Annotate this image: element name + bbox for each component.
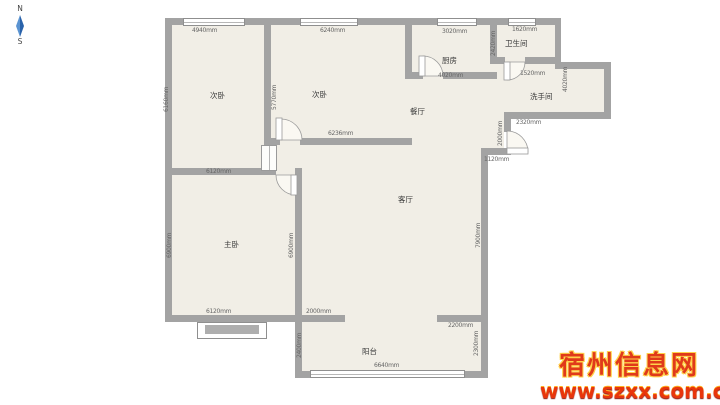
watermark-site-url: www.szxx.com.cn bbox=[540, 381, 718, 401]
dim-label-kitchen-window: 3020mm bbox=[442, 29, 467, 35]
door-leaf bbox=[507, 148, 528, 154]
compass-needle-right bbox=[20, 15, 24, 37]
room-label-dining: 餐厅 bbox=[410, 108, 425, 116]
dim-label-master-top: 6120mm bbox=[206, 169, 231, 175]
dim-label-master-right: 6900mm bbox=[289, 233, 295, 258]
compass-icon: N S bbox=[7, 1, 33, 45]
dim-label-bath-height: 2420mm bbox=[491, 31, 497, 56]
door-leaf bbox=[291, 175, 297, 195]
dim-label-bed2-height: 5770mm bbox=[272, 85, 278, 110]
dim-label-living-bl: 2000mm bbox=[306, 309, 331, 315]
room-label-bathroom: 卫生间 bbox=[505, 40, 528, 48]
floor-plan: N S 次卧 次卧 厨房 卫生间 洗手间 餐厅 客厅 主卧 阳台 4940mm … bbox=[0, 0, 720, 405]
dim-label-balcony-window: 6640mm bbox=[374, 363, 399, 369]
watermark-site-name: 宿州信息网 bbox=[540, 353, 718, 379]
door-arc-bedroom-mid bbox=[281, 119, 302, 140]
dim-label-entry-step: 1120mm bbox=[484, 157, 509, 163]
room-label-kitchen: 厨房 bbox=[442, 57, 457, 65]
compass-south-label: S bbox=[18, 37, 23, 45]
dim-label-right-side: 4020mm bbox=[563, 67, 569, 92]
dim-label-master-bottom: 6120mm bbox=[206, 309, 231, 315]
door-leaf bbox=[419, 56, 425, 76]
compass-needle-left bbox=[16, 15, 20, 37]
room-label-master: 主卧 bbox=[224, 241, 239, 249]
room-label-living: 客厅 bbox=[398, 196, 413, 204]
dim-label-bed2-width: 6236mm bbox=[328, 131, 353, 137]
dim-label-entry-wall: 2000mm bbox=[498, 121, 504, 146]
dim-label-master-left: 6900mm bbox=[167, 233, 173, 258]
dim-label-bath-door: 1520mm bbox=[520, 71, 545, 77]
dim-label-bath-window: 1620mm bbox=[512, 27, 537, 33]
dim-label-kitchen-width: 4020mm bbox=[438, 73, 463, 79]
door-leaf bbox=[276, 118, 282, 140]
dim-label-living-br: 2200mm bbox=[448, 323, 473, 329]
room-label-washroom: 洗手间 bbox=[530, 93, 553, 101]
dim-label-balcony-right: 2300mm bbox=[474, 331, 480, 356]
watermark: 宿州信息网 www.szxx.com.cn bbox=[540, 353, 718, 401]
dim-label-bed1-window: 4940mm bbox=[192, 28, 217, 34]
compass-north-label: N bbox=[17, 4, 23, 13]
dim-label-bed1-height: 6160mm bbox=[164, 87, 170, 112]
door-leaf bbox=[504, 62, 510, 80]
room-label-balcony: 阳台 bbox=[362, 348, 377, 356]
door-arcs bbox=[0, 0, 720, 405]
dim-label-balcony-left: 2400mm bbox=[297, 333, 303, 358]
dim-label-living-height: 7900mm bbox=[476, 223, 482, 248]
room-label-bedroom-mid: 次卧 bbox=[312, 91, 327, 99]
dim-label-wash-bottom: 2320mm bbox=[516, 120, 541, 126]
room-label-bedroom-left: 次卧 bbox=[210, 92, 225, 100]
dim-label-bed2-window: 6240mm bbox=[320, 28, 345, 34]
